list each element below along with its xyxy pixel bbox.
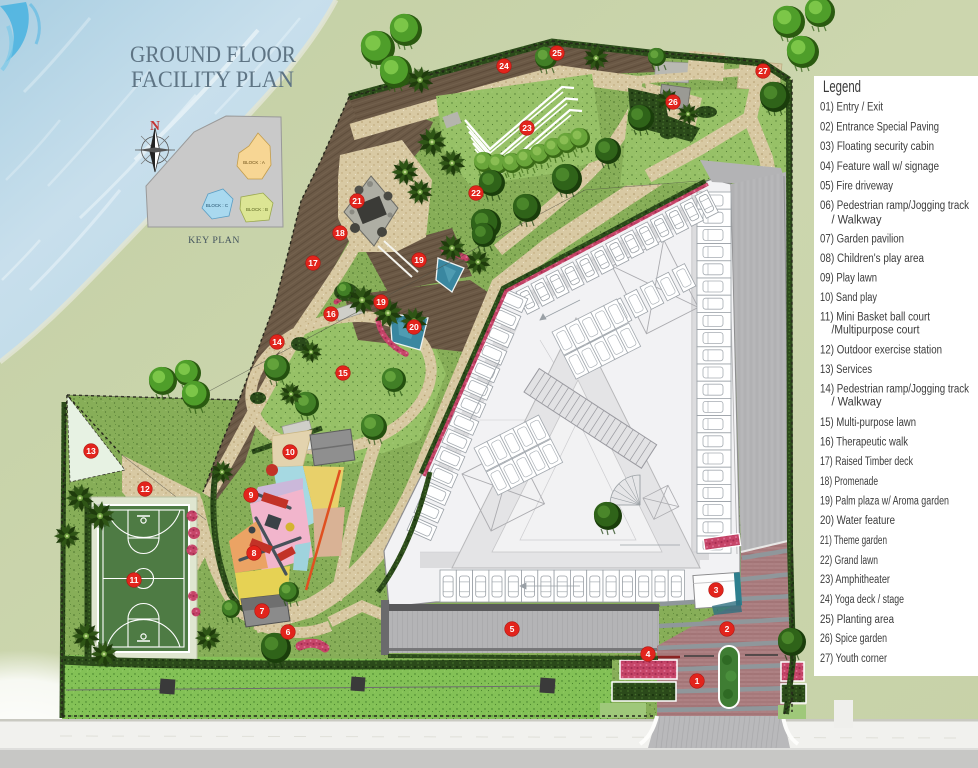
svg-text:FACILITY PLAN: FACILITY PLAN [131, 67, 294, 92]
svg-text:04) Feature wall w/ signage: 04) Feature wall w/ signage [820, 161, 939, 173]
svg-text:BLOCK : B: BLOCK : B [246, 207, 268, 212]
svg-text:15: 15 [338, 368, 348, 378]
svg-text:27) Youth corner: 27) Youth corner [820, 653, 887, 665]
svg-text:17) Raised Timber deck: 17) Raised Timber deck [820, 456, 913, 468]
svg-text:07) Garden pavilion: 07) Garden pavilion [820, 233, 904, 245]
svg-text:2: 2 [725, 624, 730, 634]
svg-text:22) Grand lawn: 22) Grand lawn [820, 555, 878, 567]
svg-text:1: 1 [695, 676, 700, 686]
svg-text:15) Multi-purpose lawn: 15) Multi-purpose lawn [820, 417, 916, 429]
svg-text:02) Entrance Special Paving: 02) Entrance Special Paving [820, 122, 939, 134]
svg-text:21: 21 [352, 196, 362, 206]
svg-text:18) Promenade: 18) Promenade [820, 476, 878, 488]
svg-text:12) Outdoor exercise station: 12) Outdoor exercise station [820, 344, 942, 356]
svg-text:19) Palm plaza w/ Aroma garden: 19) Palm plaza w/ Aroma garden [820, 495, 949, 507]
svg-text:08) Children's play area: 08) Children's play area [820, 253, 925, 265]
svg-text:5: 5 [510, 624, 515, 634]
svg-text:9: 9 [249, 490, 254, 500]
svg-text:BLOCK : C: BLOCK : C [206, 203, 229, 208]
svg-text:23: 23 [522, 123, 532, 133]
svg-text:16: 16 [326, 309, 336, 319]
svg-text:17: 17 [308, 258, 318, 268]
svg-text:/Multipurpose court: /Multipurpose court [832, 325, 921, 337]
svg-text:25) Planting area: 25) Planting area [820, 614, 895, 626]
svg-text:3: 3 [714, 585, 719, 595]
svg-text:19: 19 [376, 297, 386, 307]
svg-text:18: 18 [335, 228, 345, 238]
svg-text:16) Therapeutic walk: 16) Therapeutic walk [820, 436, 908, 448]
svg-text:KEY PLAN: KEY PLAN [188, 235, 240, 246]
svg-text:4: 4 [646, 649, 651, 659]
svg-text:20) Water feature: 20) Water feature [820, 515, 895, 527]
svg-text:05) Fire driveway: 05) Fire driveway [820, 180, 893, 192]
svg-text:13: 13 [86, 446, 96, 456]
svg-text:14: 14 [272, 337, 282, 347]
svg-text:19: 19 [414, 255, 424, 265]
svg-text:09) Play lawn: 09) Play lawn [820, 273, 877, 285]
svg-text:20: 20 [409, 322, 419, 332]
svg-text:06) Pedestrian ramp/Jogging tr: 06) Pedestrian ramp/Jogging track [820, 200, 969, 212]
svg-text:27: 27 [758, 66, 768, 76]
svg-text:11: 11 [129, 575, 138, 585]
svg-text:/ Walkway: / Walkway [832, 214, 882, 226]
svg-text:25: 25 [552, 48, 562, 58]
svg-text:14) Pedestrian ramp/Jogging tr: 14) Pedestrian ramp/Jogging track [820, 383, 969, 395]
svg-text:10: 10 [285, 447, 295, 457]
svg-text:24) Yoga deck / stage: 24) Yoga deck / stage [820, 594, 904, 606]
svg-text:12: 12 [140, 484, 150, 494]
svg-text:7: 7 [260, 606, 265, 616]
svg-text:8: 8 [252, 548, 257, 558]
svg-text:22: 22 [471, 188, 481, 198]
svg-text:6: 6 [286, 627, 291, 637]
svg-text:11) Mini Basket ball court: 11) Mini Basket ball court [820, 312, 931, 324]
svg-text:26) Spice garden: 26) Spice garden [820, 633, 887, 645]
svg-text:01) Entry / Exit: 01) Entry / Exit [820, 102, 884, 114]
svg-text:21) Theme garden: 21) Theme garden [820, 535, 887, 547]
svg-text:BLOCK : A: BLOCK : A [243, 160, 265, 165]
svg-text:13) Services: 13) Services [820, 364, 872, 376]
svg-text:03) Floating security cabin: 03) Floating security cabin [820, 141, 934, 153]
svg-text:/ Walkway: / Walkway [832, 396, 882, 408]
svg-text:10) Sand play: 10) Sand play [820, 292, 877, 304]
svg-text:Legend: Legend [823, 78, 861, 96]
svg-text:26: 26 [668, 97, 678, 107]
svg-text:23) Amphitheater: 23) Amphitheater [820, 574, 890, 586]
svg-text:24: 24 [499, 61, 509, 71]
svg-text:GROUND FLOOR: GROUND FLOOR [130, 42, 297, 67]
